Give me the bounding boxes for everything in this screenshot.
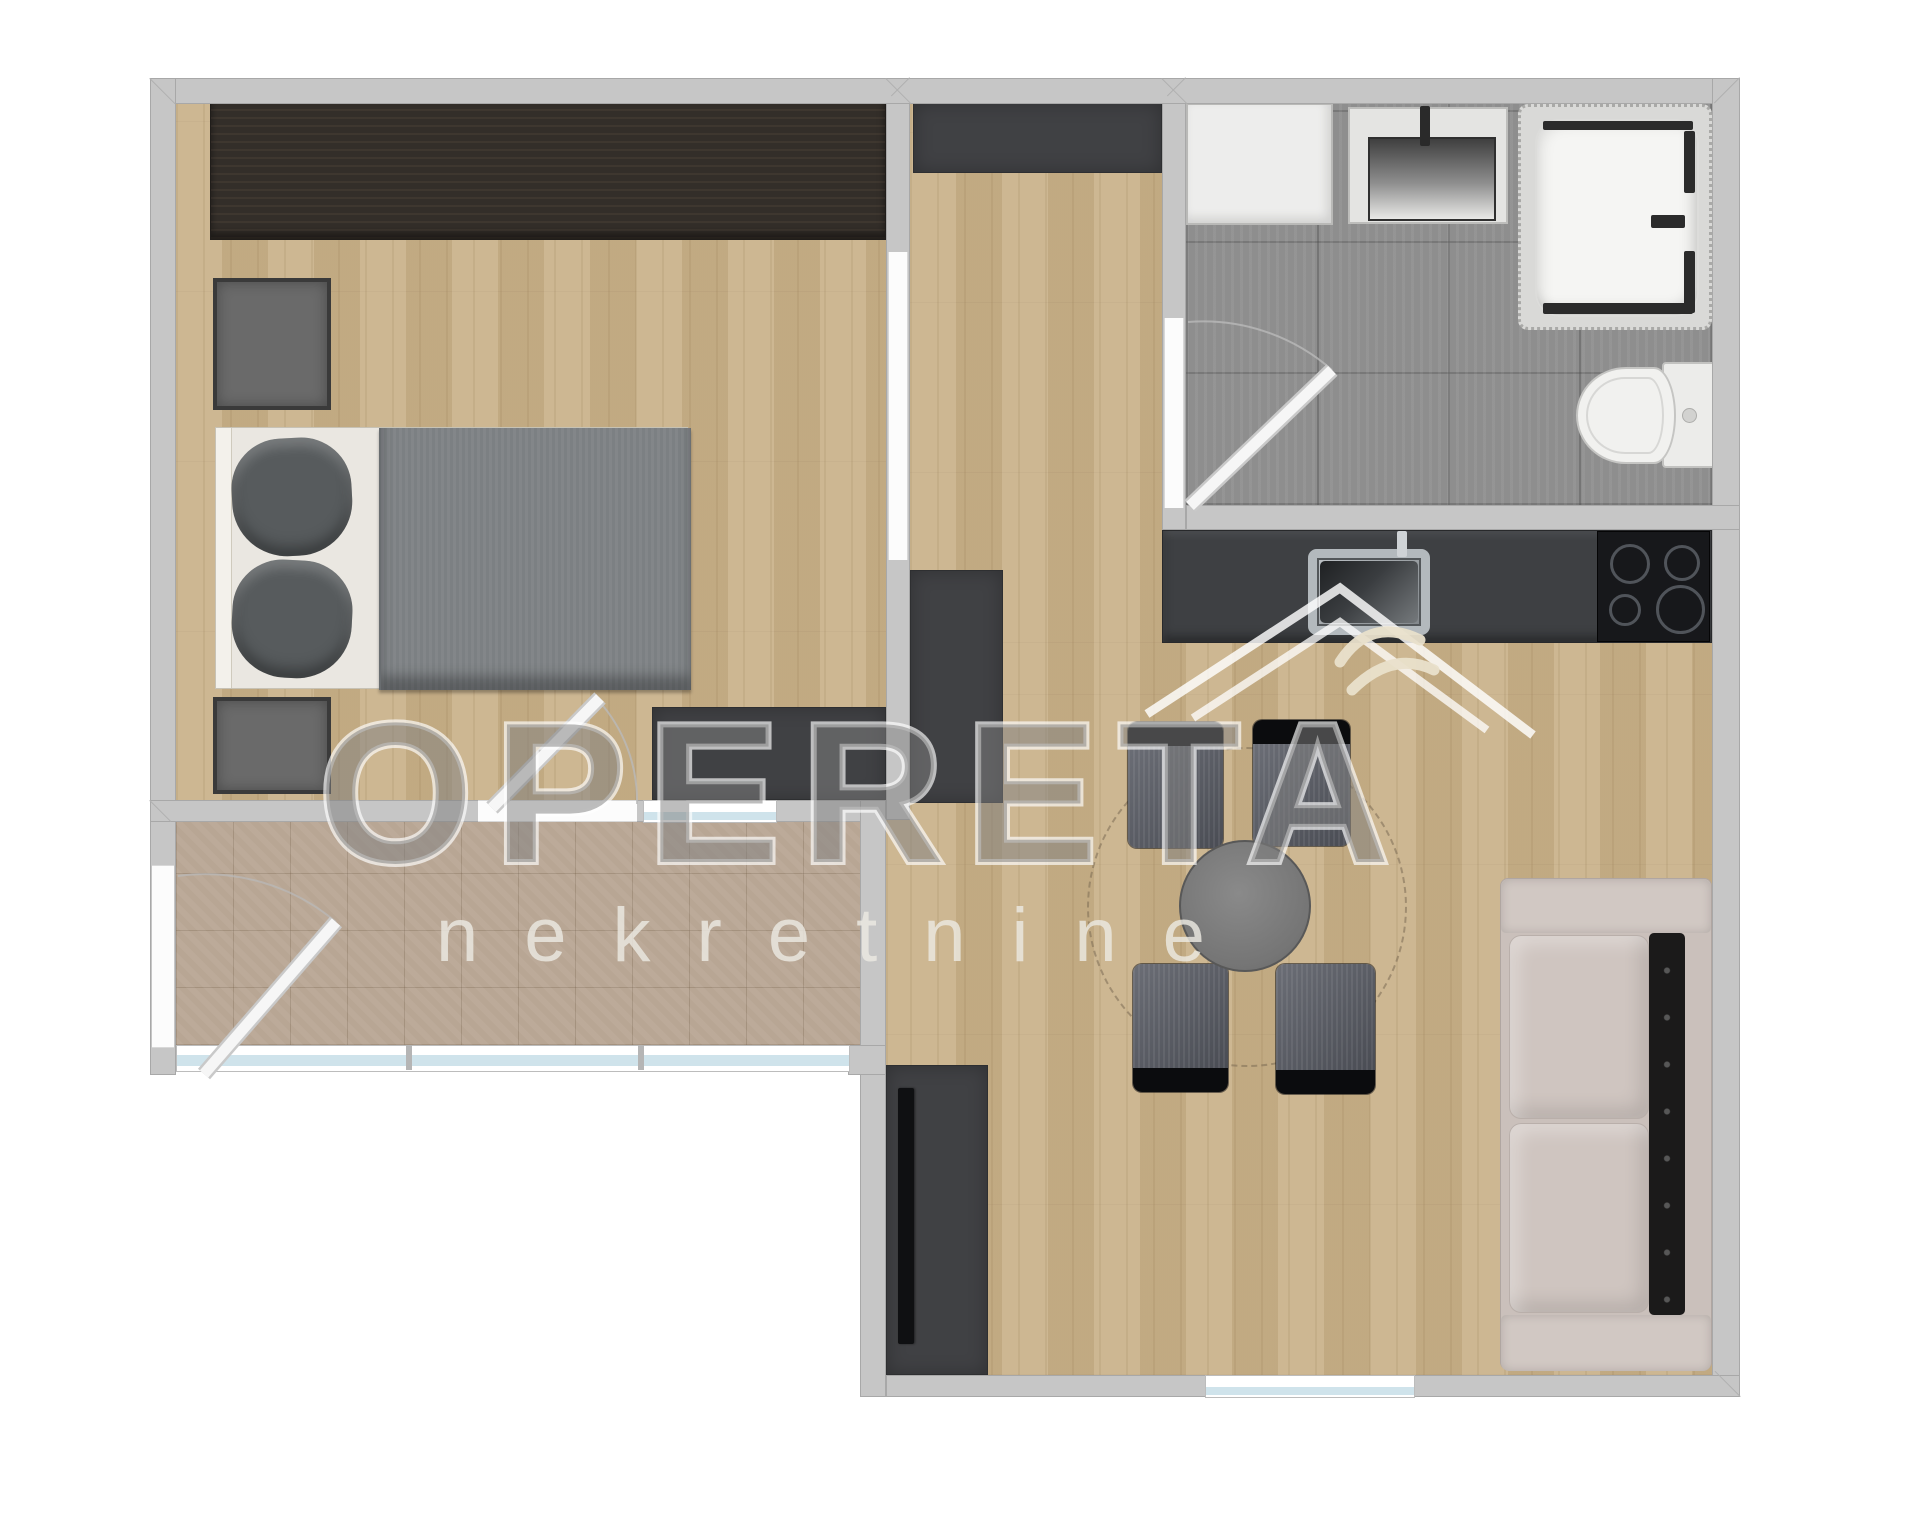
window-glass <box>644 812 776 820</box>
hallway-floor <box>910 103 1162 643</box>
nightstand-top <box>213 278 331 410</box>
sofa-armrest <box>1501 1315 1711 1371</box>
bed-headboard <box>216 428 232 688</box>
burner-icon <box>1610 544 1650 584</box>
bedroom-dresser <box>652 707 886 800</box>
shower-door-frame <box>1684 131 1695 193</box>
sofa-backrest <box>1649 933 1685 1315</box>
kitchen-sink <box>1308 549 1430 635</box>
shower-trim <box>1543 303 1693 314</box>
cooktop <box>1597 531 1710 642</box>
chair-backrest <box>1253 720 1350 744</box>
chair-seat <box>1253 744 1350 846</box>
flush-button-icon <box>1682 408 1697 423</box>
chair-backrest <box>1276 1070 1375 1094</box>
chair-seat <box>1276 964 1375 1070</box>
wall-bathroom-bottom <box>1186 505 1740 530</box>
dining-chair <box>1128 722 1223 848</box>
sofa-cushion <box>1509 1123 1649 1313</box>
sofa <box>1500 878 1712 1370</box>
living-room-window <box>1205 1375 1415 1398</box>
washbasin-vanity <box>1348 107 1508 224</box>
balcony-door-opening <box>478 800 637 822</box>
glazing-mullion <box>638 1045 644 1070</box>
wall-right <box>1712 78 1740 1397</box>
sink-basin <box>1320 561 1418 623</box>
shower-cabin <box>1518 104 1712 330</box>
kitchen-faucet-icon <box>1397 531 1407 557</box>
dining-chair <box>1276 964 1375 1094</box>
dining-chair <box>1133 964 1228 1092</box>
hallway-closet-side <box>910 570 1003 803</box>
toilet-bowl <box>1576 367 1676 464</box>
balcony-floor <box>176 822 860 1045</box>
sofa-armrest <box>1501 879 1711 933</box>
chair-backrest <box>1133 1068 1228 1092</box>
glazing-mullion <box>406 1045 412 1070</box>
wall-top <box>150 78 1740 104</box>
pillow <box>229 435 355 559</box>
pillow <box>229 557 355 681</box>
bedroom-wardrobe <box>210 103 886 240</box>
dining-chair <box>1253 720 1350 846</box>
chair-seat <box>1133 964 1228 1068</box>
shower-door-handle-icon <box>1651 215 1685 228</box>
sofa-cushion <box>1509 935 1649 1119</box>
burner-icon <box>1609 594 1641 626</box>
washing-machine <box>1186 103 1333 225</box>
shower-door-frame <box>1684 251 1695 313</box>
window-glass <box>1206 1387 1414 1395</box>
bathroom-door-opening <box>1164 318 1184 508</box>
shower-trim <box>1543 121 1693 130</box>
double-bed <box>215 427 688 689</box>
window-glass <box>177 1055 849 1066</box>
dining-table <box>1179 840 1311 972</box>
floor-plan-canvas: OPERETA nekretnine <box>0 0 1920 1536</box>
hallway-closet-top <box>913 103 1162 173</box>
burner-icon <box>1656 585 1705 634</box>
bedroom-balcony-window <box>643 800 777 823</box>
wall-living-left <box>860 800 886 1397</box>
balcony-glazing <box>176 1045 850 1072</box>
basin-faucet-icon <box>1420 106 1430 146</box>
bed-blanket <box>379 428 691 690</box>
balcony-left-door-opening <box>152 865 174 1048</box>
washbasin <box>1368 137 1496 221</box>
tv-icon <box>898 1088 914 1344</box>
chair-backrest <box>1128 722 1223 746</box>
wall-balcony-corner-stub <box>848 1045 886 1075</box>
chair-seat <box>1128 746 1223 848</box>
toilet-seat <box>1586 377 1664 454</box>
toilet <box>1576 362 1712 466</box>
burner-icon <box>1664 545 1700 581</box>
nightstand-bottom <box>213 697 331 794</box>
bedroom-door-opening <box>888 252 908 560</box>
